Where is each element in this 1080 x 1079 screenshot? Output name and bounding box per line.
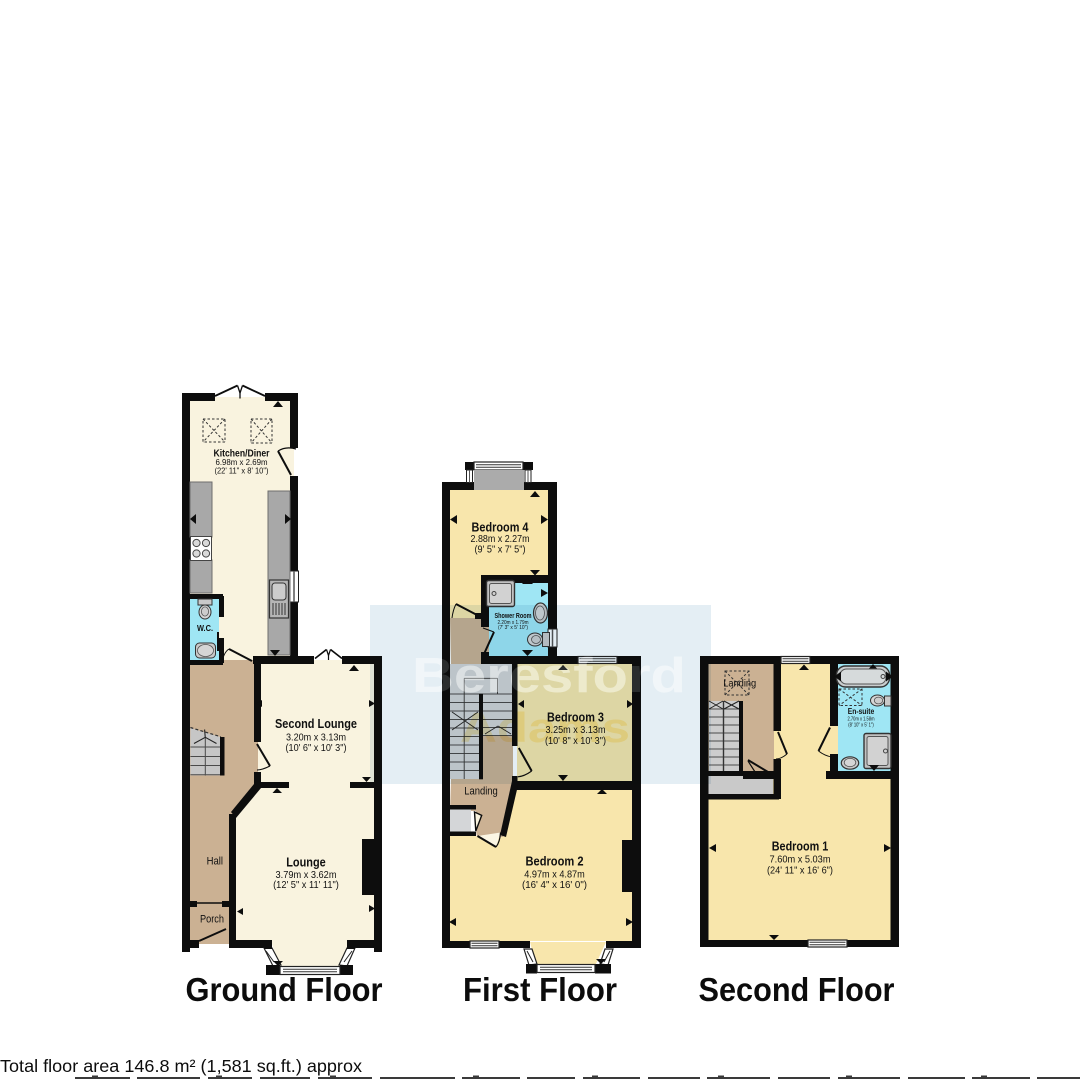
svg-text:Adams: Adams xyxy=(460,704,630,751)
svg-text:Porch: Porch xyxy=(200,914,224,926)
svg-text:Beresford: Beresford xyxy=(412,649,686,703)
svg-text:(10' 6" x 10' 3"): (10' 6" x 10' 3") xyxy=(286,742,347,754)
svg-text:(16' 4" x 16' 0"): (16' 4" x 16' 0") xyxy=(522,879,587,891)
svg-text:Lounge: Lounge xyxy=(286,855,326,870)
svg-text:(9' 5" x 7' 5"): (9' 5" x 7' 5") xyxy=(475,543,526,555)
svg-text:Hall: Hall xyxy=(207,856,223,868)
svg-text:Landing: Landing xyxy=(464,786,498,798)
svg-text:Bedroom 2: Bedroom 2 xyxy=(526,854,584,869)
svg-text:Second Lounge: Second Lounge xyxy=(275,716,357,731)
svg-text:Landing: Landing xyxy=(723,678,756,689)
svg-text:(24' 11" x 16' 6"): (24' 11" x 16' 6") xyxy=(767,865,833,877)
svg-text:En-suite: En-suite xyxy=(848,707,875,716)
svg-text:First Floor: First Floor xyxy=(463,972,617,1009)
svg-text:Ground Floor: Ground Floor xyxy=(186,972,383,1009)
svg-text:Second Floor: Second Floor xyxy=(699,972,895,1009)
svg-text:(8' 10" x 5' 1"): (8' 10" x 5' 1") xyxy=(848,722,874,728)
svg-text:(22' 11" x 8' 10"): (22' 11" x 8' 10") xyxy=(215,466,269,475)
svg-text:Bedroom 1: Bedroom 1 xyxy=(772,839,829,854)
svg-text:(12' 5" x 11' 11"): (12' 5" x 11' 11") xyxy=(273,879,339,891)
svg-text:Total floor area 146.8 m² (1,5: Total floor area 146.8 m² (1,581 sq.ft.)… xyxy=(0,1056,362,1076)
svg-text:W.C.: W.C. xyxy=(197,624,213,633)
